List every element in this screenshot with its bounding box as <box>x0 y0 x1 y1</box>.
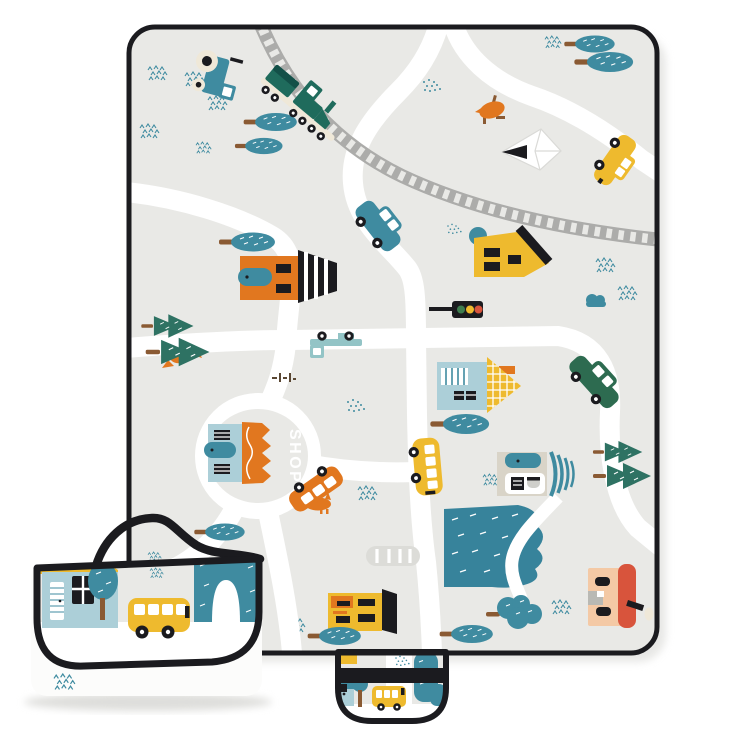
shop-building: SHOP <box>204 422 303 484</box>
bag-bridge <box>194 556 260 622</box>
bag-flap <box>30 556 262 668</box>
flap-buckle <box>341 684 347 692</box>
mat-carry-flap <box>334 652 450 722</box>
stone-path <box>366 546 420 566</box>
play-mat-scene: SHOP <box>0 0 750 750</box>
shop-sign-text: SHOP <box>286 429 303 484</box>
flap-strap <box>334 668 450 683</box>
product-photo: SHOP <box>0 0 750 750</box>
